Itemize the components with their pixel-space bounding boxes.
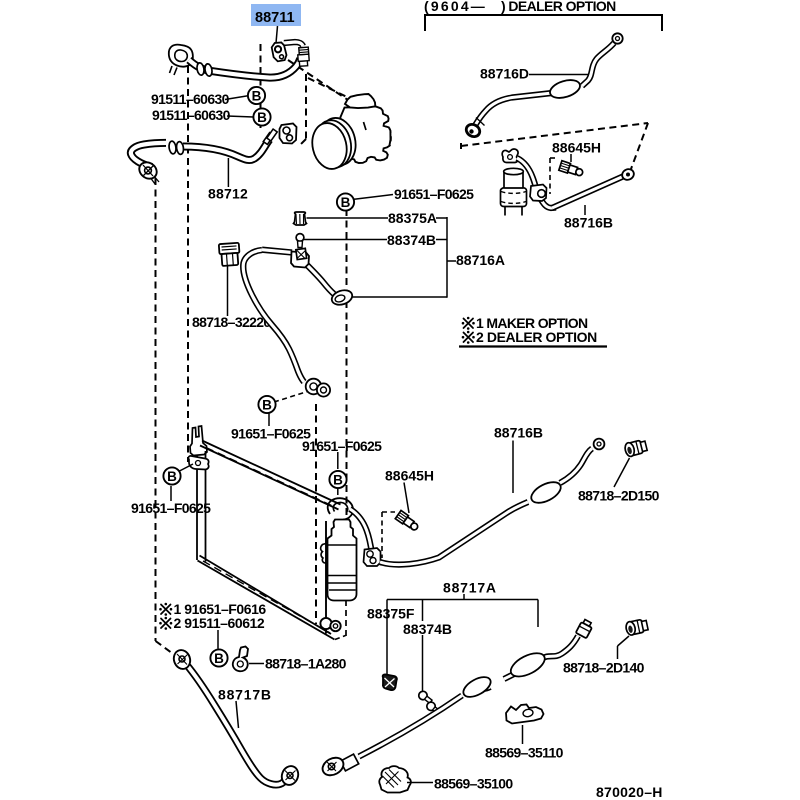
svg-text:B: B [333, 472, 343, 487]
svg-text:88716D: 88716D [480, 66, 529, 82]
svg-text:(9604—: (9604— [424, 0, 487, 14]
svg-text:B: B [341, 195, 351, 210]
svg-text:88718–2D140: 88718–2D140 [563, 660, 645, 676]
svg-text:88374B: 88374B [403, 621, 452, 637]
svg-text:B: B [252, 88, 262, 103]
svg-text:B: B [167, 469, 177, 484]
svg-text:88712: 88712 [208, 186, 248, 202]
svg-text:91651–F0625: 91651–F0625 [394, 186, 474, 202]
svg-text:88718–1A280: 88718–1A280 [265, 656, 347, 672]
svg-text:88718–32220: 88718–32220 [192, 314, 271, 330]
svg-text:88716B: 88716B [494, 425, 543, 441]
svg-text:2 DEALER OPTION: 2 DEALER OPTION [476, 329, 597, 345]
svg-text:88569–35100: 88569–35100 [434, 776, 513, 792]
svg-text:88717B: 88717B [218, 687, 272, 703]
svg-text:88716A: 88716A [456, 252, 505, 268]
svg-text:870020–H: 870020–H [596, 784, 663, 800]
svg-text:91511–60630: 91511–60630 [152, 107, 231, 123]
svg-text:88375F: 88375F [367, 606, 415, 622]
svg-text:88645H: 88645H [385, 468, 434, 484]
svg-text:) DEALER OPTION: ) DEALER OPTION [501, 0, 616, 14]
svg-text:88718–2D150: 88718–2D150 [578, 488, 660, 504]
svg-text:88716B: 88716B [564, 215, 613, 231]
svg-text:91651–F0625: 91651–F0625 [302, 438, 382, 454]
svg-text:88375A: 88375A [388, 210, 437, 226]
svg-text:91651–F0625: 91651–F0625 [231, 426, 311, 442]
svg-text:88374B: 88374B [387, 232, 436, 248]
svg-text:88711: 88711 [255, 10, 295, 26]
svg-text:91651–F0625: 91651–F0625 [131, 500, 211, 516]
svg-text:B: B [214, 651, 224, 666]
svg-text:B: B [262, 397, 272, 412]
svg-text:88569–35110: 88569–35110 [485, 745, 564, 761]
svg-text:91511–60630: 91511–60630 [151, 91, 230, 107]
svg-text:88717A: 88717A [443, 580, 497, 596]
svg-text:B: B [257, 110, 267, 125]
svg-text:2 91511–60612: 2 91511–60612 [174, 615, 265, 631]
svg-text:88645H: 88645H [552, 140, 601, 156]
